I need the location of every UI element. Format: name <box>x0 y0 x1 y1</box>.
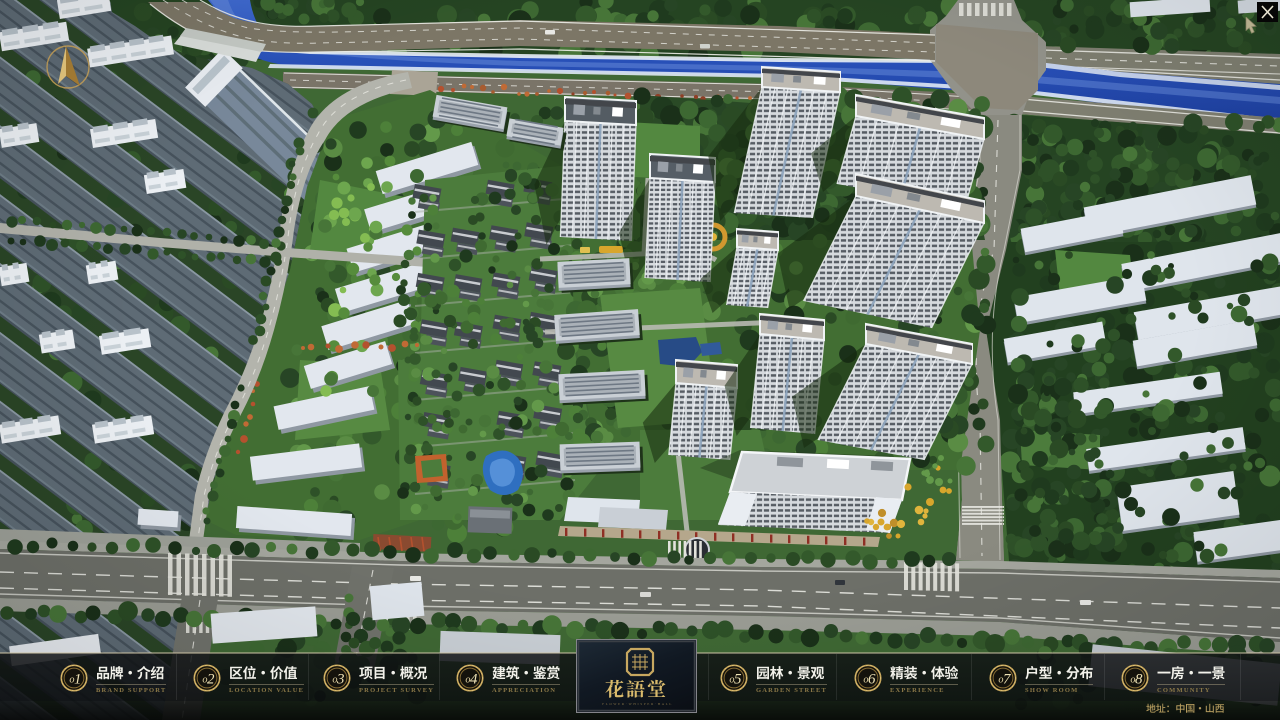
svg-text:4: 4 <box>470 671 478 687</box>
svg-text:3: 3 <box>336 671 344 687</box>
svg-text:1: 1 <box>74 671 81 687</box>
svg-text:6: 6 <box>868 671 876 687</box>
svg-text:8: 8 <box>1135 671 1143 687</box>
svg-text:F L O W E R · W H I S P E R ·: F L O W E R · W H I S P E R · H A L L <box>602 702 672 706</box>
svg-text:2: 2 <box>207 671 215 687</box>
svg-text:5: 5 <box>734 671 742 687</box>
svg-text:7: 7 <box>1003 671 1011 687</box>
